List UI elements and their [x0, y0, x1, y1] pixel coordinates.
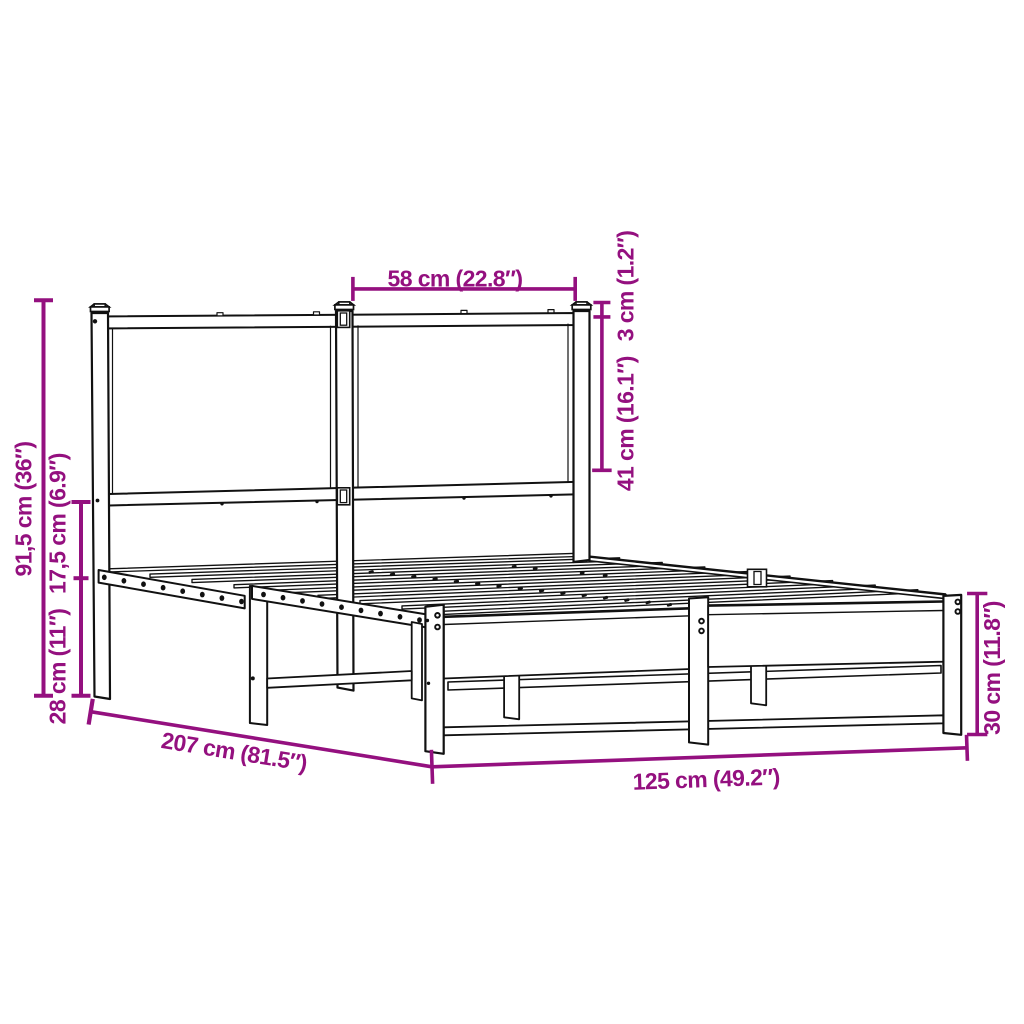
svg-text:41 cm (16.1″): 41 cm (16.1″)	[613, 356, 639, 491]
svg-text:91,5 cm (36″): 91,5 cm (36″)	[11, 442, 37, 577]
svg-text:28 cm (11″): 28 cm (11″)	[45, 609, 71, 725]
svg-text:17,5 cm (6.9″): 17,5 cm (6.9″)	[45, 453, 71, 594]
svg-text:125 cm (49.2″): 125 cm (49.2″)	[632, 763, 780, 794]
svg-text:30 cm (11.8″): 30 cm (11.8″)	[979, 601, 1005, 735]
svg-text:58 cm (22.8″): 58 cm (22.8″)	[388, 265, 523, 291]
svg-text:3 cm (1.2″): 3 cm (1.2″)	[613, 231, 639, 342]
